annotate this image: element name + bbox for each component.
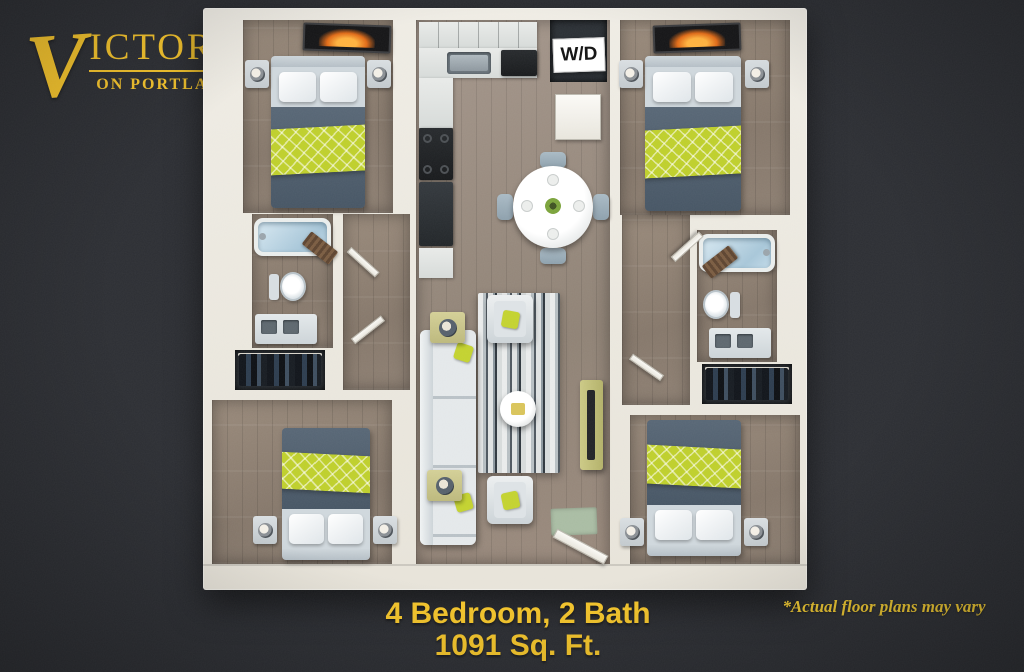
bed-headboard — [645, 56, 741, 67]
bed-blanket — [645, 107, 741, 211]
side-table — [427, 470, 462, 501]
base-cabinet — [419, 248, 453, 278]
lamp-icon — [439, 319, 457, 337]
disclaimer-text: *Actual floor plans may vary — [756, 597, 1012, 617]
place-setting — [547, 228, 559, 240]
bed-headboard — [271, 56, 365, 67]
nightstand — [367, 60, 391, 88]
nightstand — [744, 518, 768, 546]
tray-icon — [511, 403, 525, 415]
bed-top-left — [271, 56, 365, 208]
refrigerator — [419, 182, 453, 246]
bathroom-vanity — [709, 328, 771, 358]
pillow — [655, 510, 692, 540]
pillow — [320, 72, 357, 102]
bed-top-right — [645, 56, 741, 211]
lamp-icon — [436, 477, 454, 495]
nightstand — [620, 518, 644, 546]
sink-icon — [261, 320, 277, 334]
place-setting — [521, 200, 533, 212]
lamp-icon — [624, 67, 639, 82]
toilet — [280, 272, 306, 301]
bed-blanket — [271, 107, 365, 208]
dishwasher — [501, 50, 537, 76]
washer-dryer-label: W/D — [552, 37, 605, 73]
closet-left — [235, 350, 325, 390]
place-setting — [547, 174, 559, 186]
green-throw — [647, 445, 741, 489]
coffee-table — [500, 391, 536, 427]
lamp-icon — [372, 67, 387, 82]
bed-pillows — [282, 509, 370, 549]
hallway-left-floor — [343, 214, 410, 390]
toilet-tank — [730, 292, 740, 318]
burner-icon — [423, 134, 432, 143]
pillow — [279, 72, 316, 102]
caption-line2: 1091 Sq. Ft. — [288, 630, 748, 662]
nightstand — [373, 516, 397, 544]
green-pillow — [501, 310, 521, 330]
floorplan-caption: 4 Bedroom, 2 Bath 1091 Sq. Ft. — [288, 598, 748, 663]
side-table — [430, 312, 465, 343]
burner-icon — [423, 165, 432, 174]
floor-plan: W/D — [203, 8, 807, 590]
lamp-icon — [258, 523, 273, 538]
lamp-icon — [378, 523, 393, 538]
lamp-icon — [250, 67, 265, 82]
plant-centerpiece-icon — [545, 198, 561, 214]
nightstand — [245, 60, 269, 88]
dining-chair — [593, 194, 609, 220]
green-throw — [645, 125, 741, 178]
tv-console — [580, 380, 603, 470]
bed-pillows — [271, 67, 365, 107]
nightstand — [253, 516, 277, 544]
green-pillow — [453, 342, 474, 363]
sofa-back — [420, 330, 433, 545]
bed-bottom-left — [282, 428, 370, 560]
dining-table — [513, 166, 593, 248]
bed-pillows — [645, 67, 741, 107]
lamp-icon — [749, 525, 764, 540]
stove — [419, 128, 453, 180]
sink-icon — [715, 334, 731, 348]
pillow — [289, 514, 323, 544]
nightstand — [619, 60, 643, 88]
pillow — [696, 510, 733, 540]
sink-icon — [283, 320, 299, 334]
bed-bottom-right — [647, 420, 741, 556]
hanging-clothes — [706, 368, 788, 400]
toilet-tank — [269, 274, 279, 300]
victory-v-swoosh-icon: V — [23, 24, 90, 106]
place-setting — [573, 200, 585, 212]
bathroom-vanity — [255, 314, 317, 344]
sink-icon — [737, 334, 753, 348]
dining-chair — [540, 248, 566, 264]
fireplace-tv-icon — [303, 22, 392, 53]
marketing-image: V ICTORY ON PORTLAND — [0, 0, 1024, 672]
faucet-icon — [763, 249, 770, 256]
lamp-icon — [625, 525, 640, 540]
upper-cabinets — [419, 22, 537, 48]
sofa — [420, 330, 476, 545]
bed-headboard — [282, 549, 370, 560]
burner-icon — [440, 165, 449, 174]
bed-blanket — [647, 420, 741, 505]
toilet — [703, 290, 729, 319]
base-cabinet — [419, 78, 453, 128]
green-pillow — [500, 490, 520, 510]
faucet-icon — [259, 233, 266, 240]
hanging-clothes — [239, 354, 321, 386]
fireplace-tv-icon — [653, 22, 742, 53]
dining-chair — [497, 194, 513, 220]
pillow — [695, 72, 733, 102]
bed-headboard — [647, 545, 741, 556]
tv-icon — [587, 390, 595, 460]
hall-door — [555, 94, 601, 140]
bed-blanket — [282, 428, 370, 509]
green-throw — [282, 451, 370, 493]
pillow — [653, 72, 691, 102]
green-throw — [271, 125, 365, 177]
closet-right — [702, 364, 792, 404]
lamp-icon — [750, 67, 765, 82]
kitchen-sink — [447, 52, 491, 74]
caption-line1: 4 Bedroom, 2 Bath — [288, 598, 748, 630]
pillow — [328, 514, 362, 544]
burner-icon — [440, 134, 449, 143]
front-wall-edge — [203, 564, 807, 566]
bed-pillows — [647, 505, 741, 545]
nightstand — [745, 60, 769, 88]
